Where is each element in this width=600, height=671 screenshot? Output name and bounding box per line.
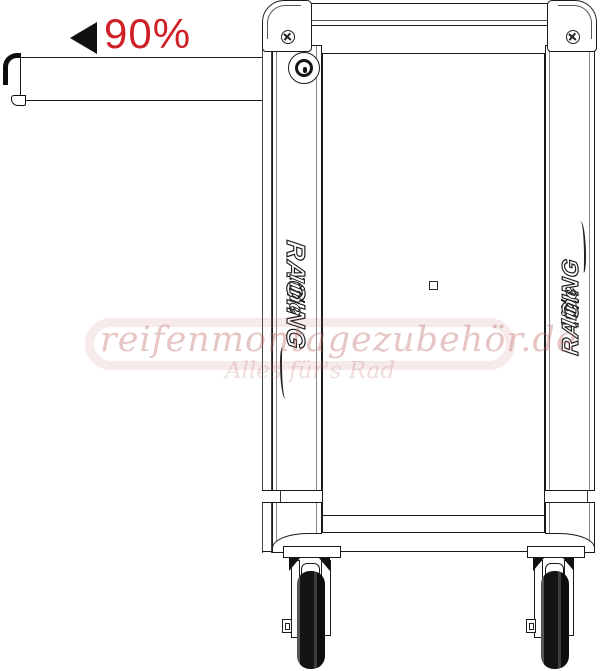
right-caster-plate <box>527 546 585 558</box>
right-wheel <box>541 571 569 669</box>
peg-hole <box>429 281 438 290</box>
drawer-front-lip <box>11 95 26 106</box>
top-handle-bar <box>298 3 558 26</box>
left-side-wall-edge <box>262 45 272 553</box>
logo-sub-text: line <box>285 272 307 317</box>
extended-drawer <box>20 57 272 101</box>
left-caster-plate <box>283 546 341 558</box>
extension-percent-label: 90% <box>104 10 191 58</box>
pegboard-bottom-band <box>322 516 545 533</box>
left-axle-bolt <box>282 619 292 633</box>
drawer-handle-hook <box>3 53 21 85</box>
keyhole-icon <box>303 67 307 73</box>
pegboard-holes <box>323 55 544 515</box>
screw-icon <box>281 30 295 44</box>
top-left-corner-cap <box>262 0 312 52</box>
swoosh-underline <box>280 347 288 399</box>
left-arrow-icon <box>70 22 97 54</box>
right-axle-bolt <box>526 619 536 633</box>
key-lock <box>288 52 320 84</box>
racing-line-logo-left: RACING line <box>278 185 314 405</box>
left-caster-swivel <box>319 558 330 571</box>
screw-icon <box>566 30 580 44</box>
right-caster-swivel <box>533 558 544 571</box>
right-caster-swivel <box>563 558 574 571</box>
logo-sub-text: line <box>559 284 581 329</box>
right-post-connector <box>545 490 595 503</box>
left-post-connector <box>262 490 322 503</box>
tool-cart-illustration: RACING line RACING line reifenmontagezub… <box>0 0 600 671</box>
left-caster-swivel <box>289 558 300 571</box>
left-wheel <box>297 571 325 669</box>
top-right-corner-cap <box>547 0 597 52</box>
swoosh-underline <box>578 221 586 273</box>
racing-line-logo-right: RACING line <box>552 215 588 399</box>
